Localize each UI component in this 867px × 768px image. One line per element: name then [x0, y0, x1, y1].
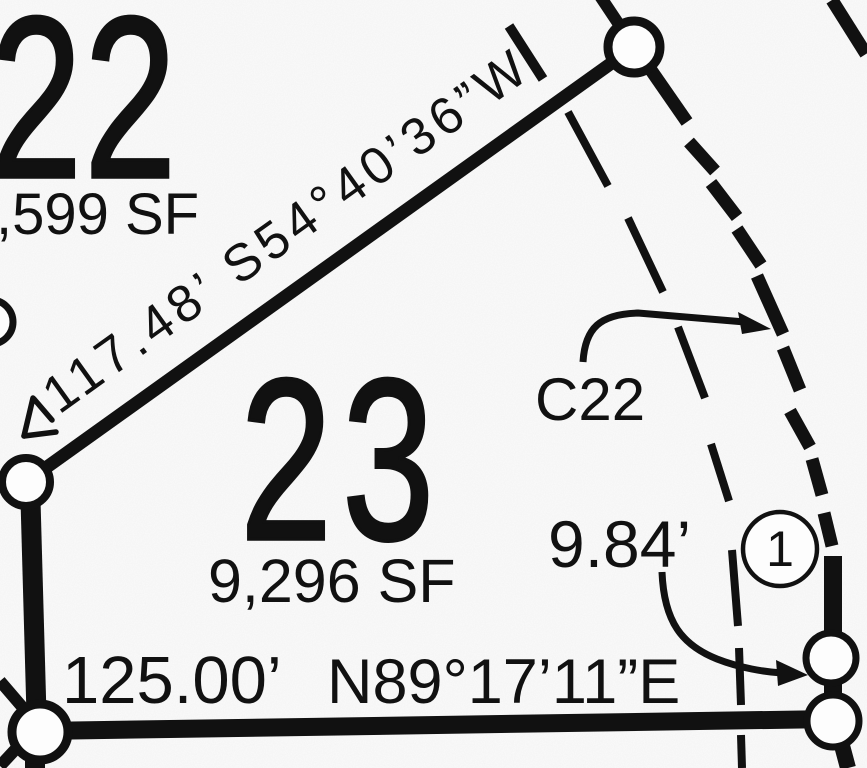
- svg-text:9.84’: 9.84’: [548, 507, 691, 581]
- svg-text:9,296 SF: 9,296 SF: [208, 547, 456, 615]
- svg-text:C22: C22: [535, 366, 645, 433]
- svg-text:1: 1: [766, 521, 794, 577]
- svg-text:125.00’: 125.00’: [62, 643, 282, 718]
- svg-text:,599 SF: ,599 SF: [0, 182, 199, 247]
- svg-text:N89°17’11”E: N89°17’11”E: [327, 647, 680, 717]
